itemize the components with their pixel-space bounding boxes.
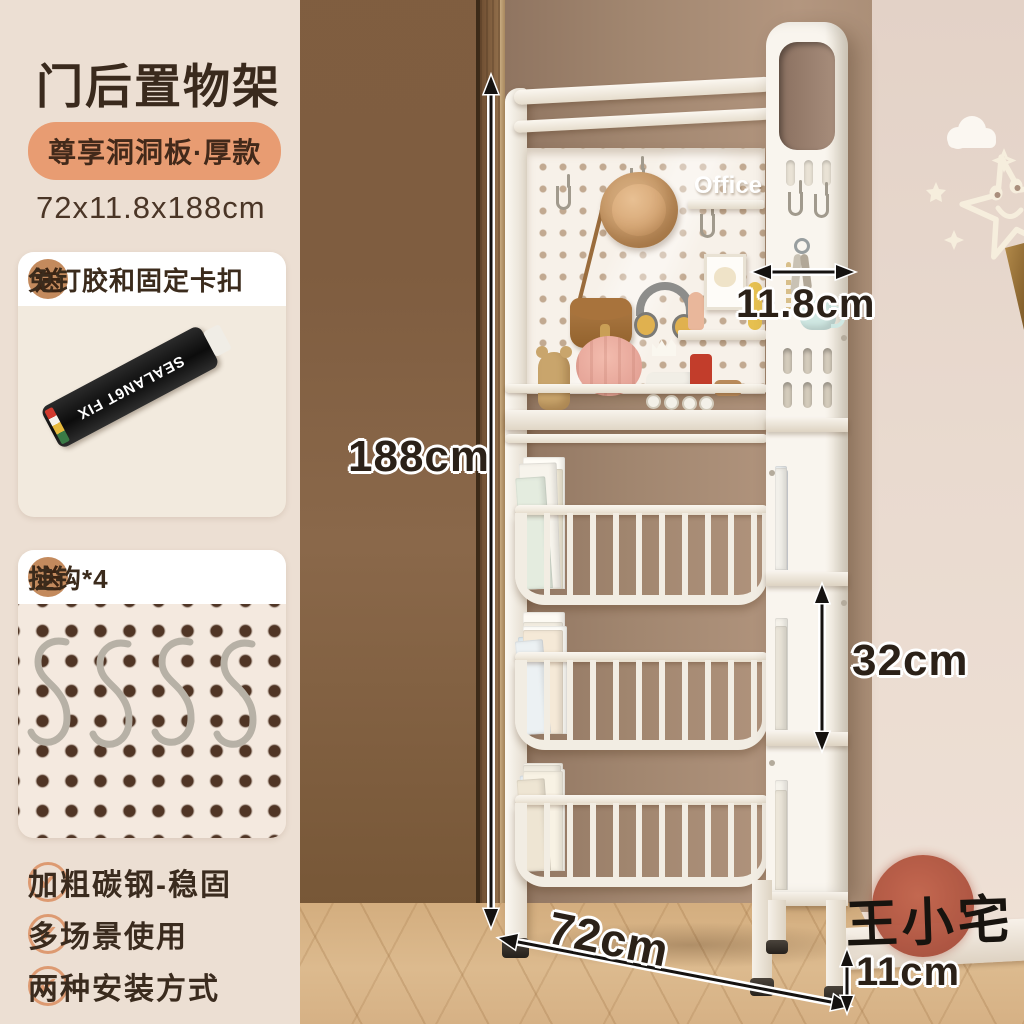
vent-slot [803,348,812,374]
vent-slot [803,382,812,408]
tower-shelf-board [766,418,848,432]
product-image: Office [0,0,1024,1024]
gift-card-hooks-title: 挂钩*4 [28,559,109,596]
teddy-bear [538,352,570,410]
toy-shelf-rail [505,384,768,393]
peg-hook-icon [556,186,571,210]
hook-mount [804,160,813,186]
tower-book-row-2 [772,614,842,730]
smiley-star-icon [954,147,1024,261]
gift-card-glue: 送 免钉胶和固定卡扣 SEALAN6T FIX [18,252,286,517]
bolt [769,760,775,766]
tower-hook-icon [788,192,803,216]
adjustable-foot [750,978,774,996]
book-spine [775,790,787,890]
feature-item: ✔ 两种安装方式 [28,962,298,1010]
tower-book-row-3 [772,774,842,890]
figurine [688,292,704,330]
kraft-corner [1005,243,1024,330]
adjustable-foot [824,986,848,1002]
pegboard-shelf-2 [678,330,766,340]
cloud-icon [947,116,996,149]
tower-shelf-board [766,572,848,586]
gift-card-hooks-header: 送 挂钩*4 [18,550,286,604]
toy-wheel [699,396,714,411]
feature-item: ✔ 多场景使用 [28,910,298,958]
vent-slot [783,348,792,374]
sparkle-icon [944,230,964,250]
feature-label: 两种安装方式 [28,964,220,1008]
small-star-icon [926,182,946,202]
hook-mount [786,160,795,186]
tower-hook-icon [814,194,829,218]
tower-book-row-1 [772,462,842,570]
book-spine [775,468,787,570]
bolt [841,335,847,341]
adjustable-foot [766,940,788,954]
size-text: 72x11.8x188cm [36,190,266,226]
gift-card-glue-header: 送 免钉胶和固定卡扣 [18,252,286,306]
feature-label: 多场景使用 [28,912,188,956]
page-title: 门后置物架 [36,48,281,117]
s-hooks-icon [26,620,278,770]
sealant-tube-label: SEALAN6T FIX [74,352,187,423]
tower-shelf-board [766,732,848,746]
vent-slot [823,382,832,408]
pegboard-shelf [688,200,764,209]
decor-letters: Office [694,172,762,200]
headphone-cup [634,312,658,338]
depth-label: 11.8cm [736,282,875,327]
straw-hat [600,172,678,248]
feature-item: ✔ 加粗碳钢-稳固 [28,858,298,906]
info-panel: 门后置物架 尊享洞洞板·厚款 72x11.8x188cm 送 免钉胶和固定卡扣 … [0,0,300,1024]
tier-label: 32cm [852,636,969,686]
wire-basket-3 [515,803,768,887]
gift-card-glue-title: 免钉胶和固定卡扣 [28,261,244,298]
vent-slot [823,348,832,374]
bolt [769,470,775,476]
height-label: 188cm [348,432,490,482]
vent-slot [783,382,792,408]
adjustable-foot [502,938,529,958]
toy-wheel [646,394,661,409]
book-spine [775,626,787,730]
peg-hook-icon [700,214,715,238]
tower-left-leg [768,900,786,944]
toy-wheel [682,396,697,411]
side-tower [766,22,848,894]
watermark-text: 王小宅 [841,877,1019,958]
subtitle-pill: 尊享洞洞板·厚款 [28,122,281,180]
keyring [794,238,810,254]
wall-decor [920,80,1024,350]
bolt [841,600,847,606]
feature-label: 加粗碳钢-稳固 [28,860,232,904]
toy-shelf-board [505,410,768,430]
gift-card-hooks: 送 挂钩*4 [18,550,286,838]
tower-handle-cutout [779,42,835,150]
sealant-tube: SEALAN6T FIX [40,324,221,449]
toy-wheel [664,395,679,410]
